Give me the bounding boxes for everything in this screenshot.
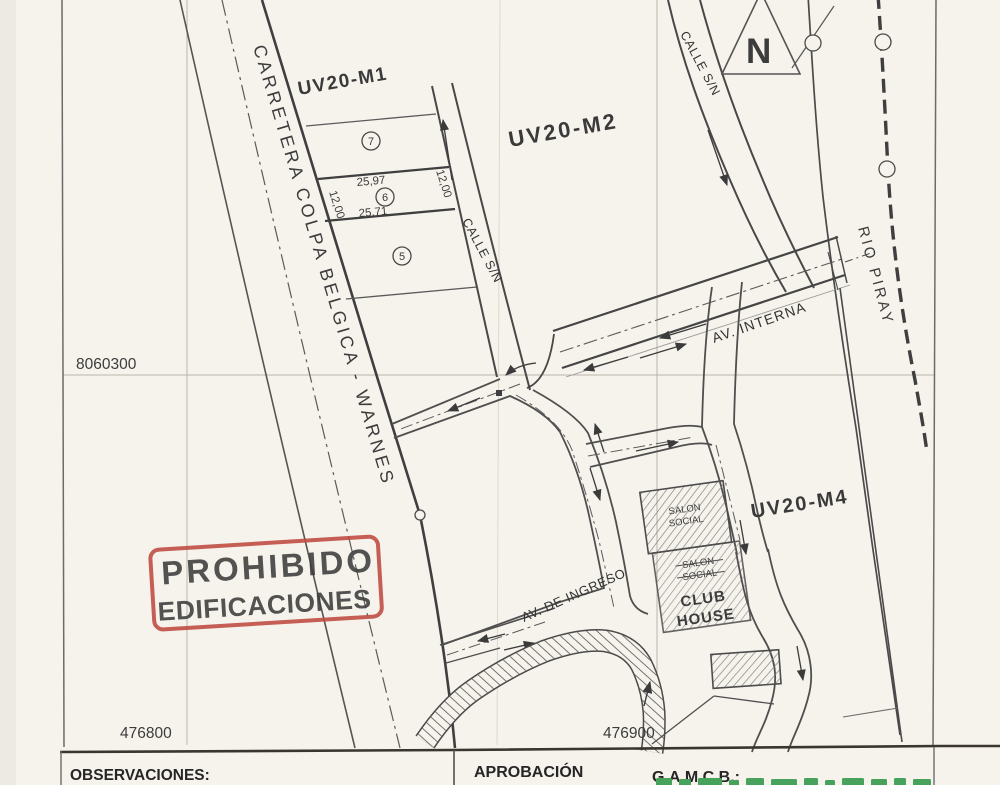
dim-bottom: 25,71 [358,206,388,220]
coord-northing: 8060300 [76,356,137,373]
aprobacion-label: APROBACIÓN [474,762,583,781]
plan-map-svg: CARRETERA COLPA BELGICA - WARNES 7 6 5 2… [0,0,1000,785]
scan-edge-shade [0,0,16,785]
boundary-marker-icon [805,35,821,51]
boundary-marker-icon [875,34,891,50]
lot-5-number: 5 [399,251,405,263]
boundary-marker-icon [879,161,895,177]
coord-easting-right: 476900 [603,725,655,742]
north-letter: N [746,32,771,71]
lot-6-number: 6 [382,192,388,204]
coord-easting-left: 476800 [120,725,172,742]
scanned-plan-page: CARRETERA COLPA BELGICA - WARNES 7 6 5 2… [0,0,1000,785]
observaciones-label: OBSERVACIONES: [70,767,210,784]
corner-marker-icon [496,390,502,396]
survey-marker-icon [415,510,425,520]
small-hatched-building [711,650,781,689]
dim-top: 25,97 [356,175,386,189]
lot-7-number: 7 [368,136,374,148]
